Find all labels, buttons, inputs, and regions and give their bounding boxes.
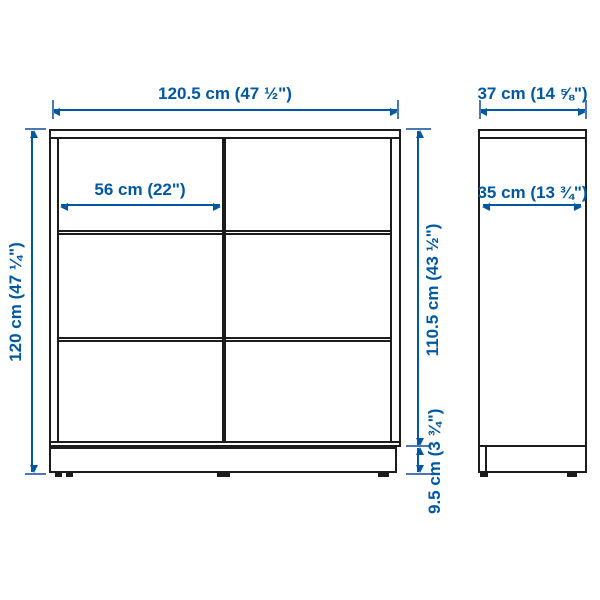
arrowhead-left-icon — [482, 203, 490, 211]
front-center-divider — [222, 139, 226, 443]
side-plinth-line — [480, 445, 585, 447]
dim-side-depth-label: 37 cm (14 ⅝") — [460, 83, 600, 105]
front-foot — [55, 473, 62, 477]
product-dimension-diagram: 120.5 cm (47 ½") 56 cm (22") 120 cm (47 … — [0, 0, 600, 600]
dim-inner-height-label: 110.5 cm (43 ½") — [422, 132, 444, 448]
dim-inner-depth-line — [483, 204, 581, 206]
dim-base-height-label: 9.5 cm (3 ¾") — [424, 410, 446, 514]
dim-inner-height-line — [417, 131, 419, 445]
dim-inner-width-label: 56 cm (22") — [60, 179, 220, 201]
front-plinth — [49, 447, 397, 473]
dim-tick — [25, 128, 46, 130]
dim-tick — [52, 100, 54, 119]
arrowhead-left-icon — [60, 203, 68, 211]
side-foot — [480, 473, 488, 477]
side-cabinet-body — [478, 129, 587, 473]
front-left-panel-line — [57, 139, 59, 443]
side-foot — [567, 473, 577, 477]
dim-front-width-label: 120.5 cm (47 ½") — [53, 83, 397, 105]
dim-tick — [406, 128, 431, 130]
arrowhead-down-icon — [30, 465, 38, 473]
dim-tick — [585, 100, 587, 119]
dim-front-width-line — [53, 109, 397, 111]
side-front-edge-line — [485, 447, 487, 471]
dim-inner-width-line — [61, 204, 220, 206]
arrowhead-down-icon — [416, 465, 424, 473]
dim-tick — [406, 473, 431, 475]
arrowhead-up-icon — [30, 130, 38, 138]
side-top-panel-line — [480, 137, 585, 139]
dim-base-height-line — [417, 448, 419, 472]
dim-side-depth-line — [480, 109, 585, 111]
dim-overall-height-label: 120 cm (47 ¼") — [5, 130, 27, 474]
arrowhead-right-icon — [213, 203, 221, 211]
dim-tick — [25, 473, 46, 475]
dim-inner-depth-label: 35 cm (13 ¾") — [460, 182, 600, 204]
arrowhead-up-icon — [416, 130, 424, 138]
front-right-panel-line — [390, 139, 392, 443]
front-foot — [66, 473, 73, 477]
dim-tick — [479, 100, 481, 119]
arrowhead-right-icon — [574, 203, 582, 211]
dim-tick — [397, 100, 399, 119]
front-foot — [217, 473, 230, 477]
arrowhead-up-icon — [416, 447, 424, 455]
dim-overall-height-line — [31, 131, 33, 472]
front-foot — [378, 473, 389, 477]
